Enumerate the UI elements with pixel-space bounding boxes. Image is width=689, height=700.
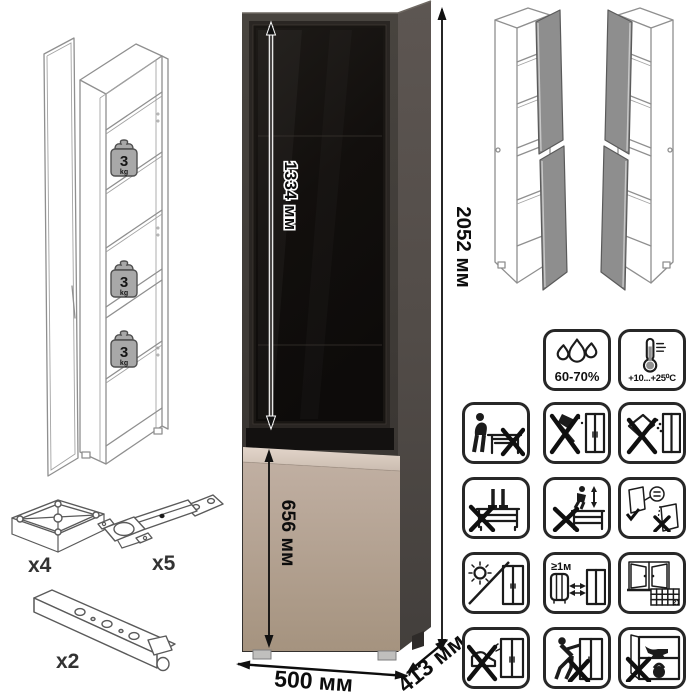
humidity-icon xyxy=(550,337,604,369)
care-box-no-liquids xyxy=(618,402,686,464)
no-sitting-icon xyxy=(467,409,525,457)
care-box-no-kicking xyxy=(462,627,530,689)
open-niche xyxy=(246,428,394,450)
furniture-spec-sheet: 3 kg 3 kg 3 kg xyxy=(0,0,689,700)
radiator-distance-icon: ≥1м xyxy=(548,559,606,607)
thermometer-icon xyxy=(625,337,679,373)
care-box-adjust-doors xyxy=(618,477,686,539)
care-box-temperature: +10...+25⁰C xyxy=(618,329,686,391)
cabinet-foot xyxy=(253,650,271,659)
total-height-label: 2052 мм xyxy=(452,206,475,288)
sun-icon xyxy=(467,559,525,607)
care-box-no-standing xyxy=(462,477,530,539)
overload-anvil-icon xyxy=(623,634,681,682)
no-jumping-icon xyxy=(548,484,606,532)
radiator-distance-label: ≥1м xyxy=(551,561,571,573)
calendar-icon: 21 xyxy=(651,589,680,606)
temperature-label: +10...+25⁰C xyxy=(628,374,676,384)
axe-icon xyxy=(548,409,606,457)
width-label: 500 мм xyxy=(273,665,353,696)
humidity-label: 60-70% xyxy=(555,370,600,383)
lower-door xyxy=(243,447,400,651)
acclimatize-days-label: 21 xyxy=(673,599,681,606)
care-box-acclimatization: 21 xyxy=(618,552,686,614)
care-box-no-dragging xyxy=(543,627,611,689)
care-box-humidity: 60-70% xyxy=(543,329,611,391)
care-box-no-direct-sunlight xyxy=(462,552,530,614)
no-standing-icon xyxy=(467,484,525,532)
care-box-no-jumping xyxy=(543,477,611,539)
dim-width: 500 мм xyxy=(236,661,409,697)
door-adjustment-icon xyxy=(623,484,681,532)
person-dragging-icon xyxy=(548,634,606,682)
care-box-no-overloading xyxy=(618,627,686,689)
cabinet-side-panel xyxy=(398,1,431,652)
window-calendar-icon: 21 xyxy=(623,559,681,607)
care-box-no-sitting xyxy=(462,402,530,464)
care-box-heater-distance: ≥1м xyxy=(543,552,611,614)
cabinet-foot xyxy=(378,651,396,660)
lower-door-height-label: 656 мм xyxy=(277,500,299,567)
pouring-liquid-icon xyxy=(623,409,681,457)
glass-door-height-label: 1334 мм xyxy=(281,161,299,230)
care-box-no-sharp-impact xyxy=(543,402,611,464)
shoe-kick-icon xyxy=(467,634,525,682)
